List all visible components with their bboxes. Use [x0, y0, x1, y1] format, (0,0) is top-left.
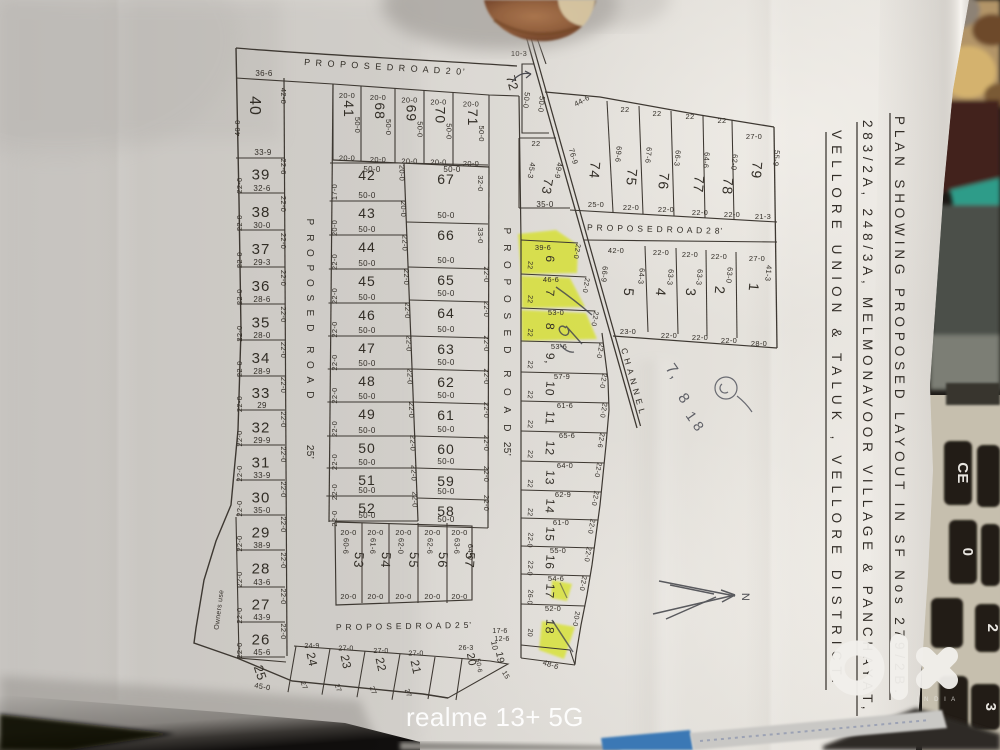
- svg-text:22-0: 22-0: [235, 252, 244, 268]
- svg-text:10: 10: [489, 640, 500, 651]
- svg-text:33-9: 33-9: [254, 148, 271, 157]
- svg-text:2: 2: [984, 624, 1000, 633]
- svg-text:22: 22: [526, 328, 534, 337]
- svg-text:22-0: 22-0: [623, 203, 639, 212]
- svg-text:20-0: 20-0: [451, 592, 467, 601]
- svg-text:50-0: 50-0: [521, 92, 532, 109]
- svg-text:20-0: 20-0: [340, 592, 356, 601]
- svg-text:62: 62: [437, 374, 455, 390]
- svg-text:50-0: 50-0: [437, 358, 454, 367]
- svg-text:P: P: [304, 219, 315, 226]
- svg-text:2: 2: [712, 285, 729, 295]
- svg-text:R: R: [501, 244, 512, 252]
- svg-text:22-0: 22-0: [279, 481, 288, 497]
- svg-text:50-0: 50-0: [358, 458, 375, 467]
- svg-text:50-0: 50-0: [437, 425, 454, 434]
- svg-text:45-6: 45-6: [253, 648, 270, 657]
- svg-text:34: 34: [252, 350, 271, 367]
- svg-text:20-0: 20-0: [370, 93, 386, 102]
- svg-text:D: D: [304, 391, 315, 399]
- svg-text:17-0: 17-0: [330, 184, 339, 200]
- svg-text:O: O: [304, 279, 315, 287]
- svg-text:5: 5: [621, 287, 638, 297]
- svg-text:22-0: 22-0: [279, 588, 288, 604]
- svg-text:50-0: 50-0: [358, 191, 375, 200]
- svg-text:50-0: 50-0: [358, 486, 375, 495]
- svg-text:50-0: 50-0: [358, 426, 375, 435]
- svg-text:50-0: 50-0: [358, 392, 375, 401]
- svg-text:22-0: 22-0: [403, 302, 412, 318]
- svg-text:22-0: 22-0: [482, 368, 491, 384]
- svg-text:40: 40: [246, 96, 263, 116]
- svg-text:22-0: 22-0: [409, 465, 418, 481]
- svg-text:27-0: 27-0: [749, 254, 765, 263]
- svg-text:50-0: 50-0: [443, 165, 460, 174]
- svg-text:22-0: 22-0: [661, 331, 677, 340]
- svg-text:67-6: 67-6: [643, 147, 653, 164]
- svg-text:20-0: 20-0: [424, 528, 440, 537]
- svg-text:75: 75: [623, 168, 640, 187]
- svg-text:33: 33: [252, 385, 271, 402]
- svg-text:20-0: 20-0: [395, 528, 411, 537]
- svg-text:21: 21: [408, 659, 425, 676]
- svg-text:41-3: 41-3: [763, 265, 773, 282]
- svg-text:S: S: [501, 313, 512, 320]
- svg-text:22-0: 22-0: [235, 465, 244, 481]
- svg-text:47: 47: [358, 340, 376, 356]
- svg-text:30: 30: [252, 490, 271, 507]
- svg-text:20-0: 20-0: [398, 165, 407, 181]
- svg-text:25’: 25’: [501, 442, 512, 456]
- svg-text:55: 55: [406, 552, 422, 569]
- svg-text:22-0: 22-0: [279, 196, 288, 212]
- svg-text:22-0: 22-0: [279, 233, 288, 249]
- svg-text:27: 27: [252, 597, 271, 614]
- svg-text:22: 22: [621, 105, 630, 114]
- svg-text:P: P: [304, 265, 315, 272]
- svg-text:P: P: [501, 228, 512, 235]
- svg-text:22-0: 22-0: [482, 495, 491, 511]
- svg-text:62-0: 62-0: [396, 538, 406, 555]
- svg-text:50-0: 50-0: [445, 123, 454, 139]
- svg-text:50-0: 50-0: [358, 326, 375, 335]
- svg-text:R: R: [304, 234, 315, 242]
- svg-text:22-0: 22-0: [721, 336, 737, 345]
- svg-text:22-0: 22-0: [330, 354, 339, 370]
- svg-text:22-0: 22-0: [330, 484, 339, 500]
- svg-text:22-0: 22-0: [724, 210, 740, 219]
- svg-text:50-0: 50-0: [536, 96, 547, 113]
- svg-text:32-0: 32-0: [476, 175, 485, 191]
- svg-text:20-0: 20-0: [339, 154, 355, 163]
- svg-text:P: P: [501, 279, 512, 286]
- svg-text:50-0: 50-0: [437, 515, 454, 524]
- svg-text:43-9: 43-9: [253, 613, 270, 622]
- svg-text:22-0: 22-0: [235, 289, 244, 305]
- svg-text:50-0: 50-0: [358, 511, 375, 520]
- svg-text:22-0: 22-0: [279, 342, 288, 358]
- svg-text:50-0: 50-0: [437, 325, 454, 334]
- svg-text:20-0: 20-0: [395, 592, 411, 601]
- svg-text:22-0: 22-0: [407, 402, 416, 418]
- svg-text:49: 49: [358, 406, 376, 422]
- svg-text:45: 45: [358, 273, 376, 289]
- svg-text:50: 50: [358, 440, 376, 456]
- svg-text:22-0: 22-0: [653, 248, 669, 257]
- svg-text:63: 63: [437, 341, 455, 357]
- svg-text:26-3: 26-3: [458, 645, 473, 652]
- svg-text:E: E: [501, 330, 512, 337]
- svg-text:36: 36: [252, 278, 271, 295]
- svg-text:23: 23: [338, 654, 355, 671]
- svg-text:50-0: 50-0: [358, 259, 375, 268]
- svg-text:53-0: 53-0: [548, 308, 564, 317]
- svg-text:42-0: 42-0: [608, 246, 624, 255]
- svg-text:22-0: 22-0: [482, 402, 491, 418]
- svg-text:9,: 9,: [542, 352, 557, 365]
- svg-text:283/2A, 248/3A, MELMONAVOOR VI: 283/2A, 248/3A, MELMONAVOOR VILLAGE & PA…: [860, 120, 875, 712]
- svg-text:69: 69: [404, 105, 420, 123]
- svg-text:28-9: 28-9: [253, 367, 270, 376]
- svg-text:55-0: 55-0: [550, 546, 566, 555]
- svg-text:22-0: 22-0: [235, 430, 244, 446]
- svg-text:22-0: 22-0: [682, 250, 698, 259]
- svg-text:1: 1: [746, 282, 763, 292]
- svg-text:60: 60: [437, 441, 455, 457]
- svg-text:D: D: [501, 424, 512, 432]
- svg-text:A: A: [501, 407, 512, 414]
- svg-text:10-3: 10-3: [511, 49, 527, 58]
- svg-text:71: 71: [465, 109, 481, 127]
- svg-text:50-0: 50-0: [363, 165, 380, 174]
- svg-text:77: 77: [690, 175, 707, 194]
- svg-text:27-0: 27-0: [408, 651, 423, 658]
- svg-text:63-3: 63-3: [694, 269, 704, 286]
- svg-text:8: 8: [543, 322, 558, 331]
- svg-text:40-0: 40-0: [233, 120, 242, 136]
- svg-text:66-9: 66-9: [599, 266, 609, 283]
- svg-text:35-0: 35-0: [253, 506, 270, 515]
- svg-text:61-6: 61-6: [557, 401, 573, 410]
- svg-text:50-0: 50-0: [437, 256, 454, 265]
- svg-text:64-0: 64-0: [466, 544, 475, 560]
- svg-text:41: 41: [341, 100, 357, 118]
- svg-text:22-0: 22-0: [692, 208, 708, 217]
- svg-text:22-0: 22-0: [330, 387, 339, 403]
- svg-text:50-0: 50-0: [437, 211, 454, 220]
- svg-text:50-0: 50-0: [358, 359, 375, 368]
- svg-text:64: 64: [437, 305, 455, 321]
- svg-text:22-0: 22-0: [658, 205, 674, 214]
- svg-text:39: 39: [252, 167, 271, 184]
- svg-text:20-0: 20-0: [339, 91, 355, 100]
- svg-text:22: 22: [526, 508, 534, 517]
- svg-text:22: 22: [686, 112, 695, 121]
- svg-text:22-0: 22-0: [235, 215, 244, 231]
- svg-text:20-0: 20-0: [424, 592, 440, 601]
- svg-text:20-0: 20-0: [367, 592, 383, 601]
- svg-text:32: 32: [252, 420, 271, 437]
- svg-text:N: N: [739, 593, 751, 601]
- svg-text:63-3: 63-3: [665, 269, 675, 286]
- svg-text:52-0: 52-0: [545, 604, 561, 613]
- svg-text:R: R: [304, 346, 315, 354]
- svg-text:27-0: 27-0: [746, 132, 762, 141]
- svg-text:22: 22: [526, 360, 534, 369]
- svg-text:R: R: [501, 370, 512, 378]
- svg-text:22: 22: [526, 420, 534, 429]
- svg-text:66: 66: [437, 227, 455, 243]
- svg-text:15: 15: [542, 526, 557, 543]
- svg-text:S: S: [304, 295, 315, 302]
- svg-text:50-0: 50-0: [358, 225, 375, 234]
- svg-text:56: 56: [435, 552, 451, 569]
- svg-text:27-0: 27-0: [338, 646, 353, 653]
- svg-text:78: 78: [719, 177, 736, 196]
- svg-text:29: 29: [252, 525, 271, 542]
- svg-text:22-0: 22-0: [330, 254, 339, 270]
- svg-text:68: 68: [372, 102, 388, 120]
- svg-text:62-9: 62-9: [555, 490, 571, 499]
- svg-text:3: 3: [683, 287, 700, 297]
- svg-text:22-0: 22-0: [408, 435, 417, 451]
- svg-text:50-0: 50-0: [477, 126, 486, 142]
- svg-text:17: 17: [542, 583, 557, 600]
- svg-text:42-0: 42-0: [279, 88, 288, 104]
- svg-text:53: 53: [351, 552, 367, 569]
- svg-text:22-0: 22-0: [235, 571, 244, 587]
- svg-text:O: O: [501, 295, 512, 303]
- svg-text:25’: 25’: [304, 445, 315, 459]
- svg-text:46-6: 46-6: [543, 275, 559, 284]
- svg-text:22-0: 22-0: [482, 466, 491, 482]
- svg-text:22-0: 22-0: [279, 270, 288, 286]
- svg-text:38-9: 38-9: [253, 541, 270, 550]
- svg-text:10: 10: [542, 381, 557, 398]
- svg-text:43: 43: [358, 205, 376, 221]
- svg-text:65: 65: [437, 272, 455, 288]
- svg-text:12: 12: [542, 440, 557, 457]
- svg-text:6: 6: [543, 255, 558, 264]
- svg-text:50-0: 50-0: [437, 487, 454, 496]
- svg-text:O: O: [501, 261, 512, 269]
- svg-text:22-0: 22-0: [482, 435, 491, 451]
- svg-text:54: 54: [378, 552, 394, 569]
- svg-text:23-0: 23-0: [620, 327, 636, 336]
- svg-text:22: 22: [526, 295, 534, 304]
- svg-text:14: 14: [542, 498, 557, 515]
- svg-text:29-3: 29-3: [253, 258, 270, 267]
- svg-text:26: 26: [252, 632, 271, 649]
- svg-text:22-0: 22-0: [404, 335, 413, 351]
- svg-text:28-0: 28-0: [751, 339, 767, 348]
- svg-text:20-0: 20-0: [399, 201, 408, 217]
- svg-text:66-3: 66-3: [672, 150, 682, 167]
- svg-text:73: 73: [539, 177, 557, 196]
- svg-text:35-0: 35-0: [536, 200, 553, 209]
- svg-text:O: O: [304, 249, 315, 257]
- svg-text:17-6: 17-6: [492, 628, 507, 635]
- svg-text:50-0: 50-0: [358, 293, 375, 302]
- svg-text:24: 24: [304, 651, 321, 668]
- svg-text:33-9: 33-9: [253, 471, 270, 480]
- svg-text:22-0: 22-0: [711, 252, 727, 261]
- svg-text:realme 13+ 5G: realme 13+ 5G: [406, 702, 584, 732]
- svg-text:13: 13: [542, 470, 557, 487]
- svg-text:32-6: 32-6: [253, 184, 270, 193]
- svg-text:55-9: 55-9: [771, 150, 781, 167]
- svg-text:61: 61: [437, 407, 455, 423]
- svg-text:22-0: 22-0: [692, 333, 708, 342]
- svg-text:D: D: [304, 324, 315, 332]
- svg-text:22-0: 22-0: [482, 301, 491, 317]
- svg-text:54-6: 54-6: [548, 574, 564, 583]
- svg-text:3: 3: [982, 703, 999, 712]
- svg-text:22-6: 22-6: [279, 158, 288, 174]
- svg-text:16: 16: [542, 554, 557, 571]
- svg-text:29-9: 29-9: [253, 436, 270, 445]
- svg-text:64-0: 64-0: [557, 461, 573, 470]
- svg-text:28-0: 28-0: [253, 331, 270, 340]
- svg-text:35: 35: [252, 315, 271, 332]
- svg-text:25-0: 25-0: [588, 200, 604, 209]
- svg-text:69-6: 69-6: [613, 146, 623, 163]
- svg-text:22-0: 22-0: [235, 396, 244, 412]
- svg-text:20-0: 20-0: [451, 528, 467, 537]
- svg-text:38: 38: [252, 204, 271, 221]
- svg-text:22-0: 22-0: [279, 623, 288, 639]
- svg-text:22-0: 22-0: [400, 235, 409, 251]
- svg-text:30-0: 30-0: [253, 221, 270, 230]
- svg-text:63-6: 63-6: [452, 538, 462, 555]
- svg-text:E: E: [304, 310, 315, 317]
- svg-text:22: 22: [718, 116, 727, 125]
- svg-text:62-0: 62-0: [729, 154, 739, 171]
- svg-text:63-0: 63-0: [724, 267, 734, 284]
- svg-text:22: 22: [653, 109, 662, 118]
- svg-text:11: 11: [542, 411, 557, 427]
- svg-text:20-0: 20-0: [430, 97, 446, 106]
- svg-text:22-0: 22-0: [235, 500, 244, 516]
- svg-text:20: 20: [526, 628, 534, 637]
- svg-text:50-0: 50-0: [437, 391, 454, 400]
- svg-text:O: O: [501, 388, 512, 396]
- svg-text:D: D: [501, 346, 512, 354]
- svg-text:22: 22: [373, 656, 390, 673]
- svg-text:20-0: 20-0: [463, 100, 479, 109]
- svg-text:22-0: 22-0: [330, 421, 339, 437]
- svg-text:22-0: 22-0: [406, 368, 415, 384]
- svg-text:33-0: 33-0: [476, 227, 485, 243]
- svg-text:29: 29: [257, 401, 267, 410]
- svg-text:20-0: 20-0: [367, 528, 383, 537]
- svg-text:22: 22: [532, 139, 541, 148]
- svg-text:50-0: 50-0: [437, 289, 454, 298]
- svg-text:22-0: 22-0: [235, 607, 244, 623]
- svg-text:20-0: 20-0: [401, 95, 417, 104]
- svg-text:31: 31: [252, 455, 271, 472]
- svg-text:79: 79: [748, 161, 765, 180]
- svg-text:50-0: 50-0: [384, 119, 393, 135]
- svg-text:22-0: 22-0: [402, 269, 411, 285]
- svg-text:64-3: 64-3: [636, 268, 646, 285]
- svg-text:20-0: 20-0: [340, 528, 356, 537]
- svg-text:O: O: [304, 361, 315, 369]
- svg-text:22-0: 22-0: [279, 552, 288, 568]
- svg-text:22: 22: [526, 450, 534, 459]
- svg-text:28-6: 28-6: [253, 295, 270, 304]
- svg-text:22-0: 22-0: [410, 491, 419, 507]
- svg-text:4: 4: [653, 287, 670, 297]
- svg-text:22-0: 22-0: [279, 377, 288, 393]
- svg-text:48: 48: [358, 373, 376, 389]
- svg-text:21-3: 21-3: [755, 212, 771, 221]
- svg-text:22-0: 22-0: [279, 446, 288, 462]
- svg-text:60-6: 60-6: [341, 538, 351, 555]
- svg-text:22-0: 22-0: [279, 411, 288, 427]
- svg-text:22-0: 22-0: [279, 306, 288, 322]
- svg-text:43-6: 43-6: [253, 578, 270, 587]
- svg-text:50-0: 50-0: [437, 457, 454, 466]
- svg-text:22: 22: [526, 261, 534, 270]
- svg-text:76: 76: [655, 172, 672, 191]
- svg-text:22-0: 22-0: [235, 325, 244, 341]
- svg-text:22-0: 22-0: [235, 361, 244, 377]
- svg-text:50-0: 50-0: [416, 121, 425, 137]
- svg-text:61-0: 61-0: [553, 518, 569, 527]
- svg-text:7: 7: [543, 289, 558, 298]
- svg-text:64-6: 64-6: [701, 152, 711, 169]
- svg-text:A: A: [304, 377, 315, 384]
- svg-text:20-0: 20-0: [463, 159, 479, 168]
- svg-text:28: 28: [252, 561, 271, 578]
- svg-text:22: 22: [526, 390, 534, 399]
- svg-text:36-6: 36-6: [255, 69, 272, 78]
- svg-text:74: 74: [586, 161, 603, 180]
- svg-text:24-9: 24-9: [304, 643, 319, 650]
- svg-text:26-0: 26-0: [525, 589, 533, 605]
- svg-text:44: 44: [358, 239, 376, 255]
- svg-text:61-6: 61-6: [368, 538, 378, 555]
- svg-text:65-6: 65-6: [559, 431, 575, 440]
- svg-text:18: 18: [542, 619, 557, 636]
- svg-text:22-0: 22-0: [482, 335, 491, 351]
- svg-text:20-0: 20-0: [330, 220, 339, 236]
- svg-text:46: 46: [358, 307, 376, 323]
- svg-text:22-0: 22-0: [482, 266, 491, 282]
- svg-text:22-0: 22-0: [330, 321, 339, 337]
- svg-text:22-0: 22-0: [235, 177, 244, 193]
- svg-text:PLAN SHOWING PROPOSED LAYOUT I: PLAN SHOWING PROPOSED LAYOUT IN SF Nos 2…: [892, 116, 907, 696]
- svg-text:70: 70: [433, 107, 449, 125]
- svg-text:39-6: 39-6: [535, 243, 551, 252]
- svg-text:0: 0: [959, 548, 976, 557]
- svg-text:I N D I A: I N D I A: [917, 697, 957, 703]
- svg-text:CE: CE: [954, 462, 971, 483]
- svg-text:27-0: 27-0: [373, 648, 388, 655]
- svg-text:62-6: 62-6: [425, 538, 435, 555]
- svg-text:22-0: 22-0: [279, 516, 288, 532]
- svg-text:57-9: 57-9: [554, 372, 570, 381]
- svg-text:22: 22: [526, 479, 534, 488]
- svg-text:37: 37: [252, 241, 271, 258]
- svg-text:22-0: 22-0: [330, 288, 339, 304]
